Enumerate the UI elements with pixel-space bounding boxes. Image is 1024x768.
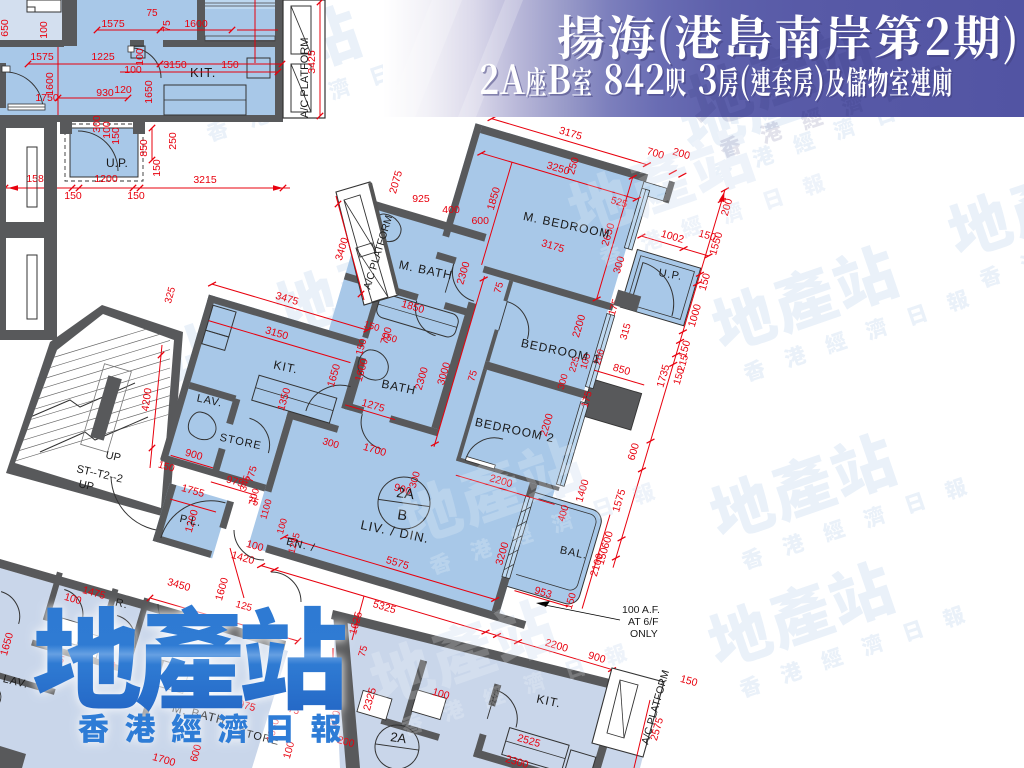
svg-text:930: 930 bbox=[96, 87, 114, 99]
svg-text:150: 150 bbox=[64, 190, 82, 202]
svg-text:1650: 1650 bbox=[143, 80, 155, 104]
svg-text:100 A.F.: 100 A.F. bbox=[622, 604, 660, 616]
svg-text:150: 150 bbox=[110, 127, 122, 145]
svg-text:400: 400 bbox=[442, 204, 460, 216]
svg-text:850: 850 bbox=[138, 139, 150, 157]
svg-text:3150: 3150 bbox=[163, 59, 187, 71]
svg-text:3215: 3215 bbox=[193, 174, 217, 186]
svg-text:150: 150 bbox=[221, 59, 239, 71]
svg-text:120: 120 bbox=[114, 84, 132, 96]
svg-text:ONLY: ONLY bbox=[630, 628, 658, 640]
svg-text:925: 925 bbox=[412, 193, 430, 205]
svg-text:1750: 1750 bbox=[35, 92, 59, 104]
svg-text:1575: 1575 bbox=[30, 51, 54, 63]
svg-text:A/C PLATFORM: A/C PLATFORM bbox=[299, 38, 311, 118]
svg-text:100: 100 bbox=[134, 48, 146, 66]
svg-text:U.P.: U.P. bbox=[106, 156, 128, 170]
svg-text:AT 6/F: AT 6/F bbox=[628, 616, 659, 628]
svg-text:600: 600 bbox=[471, 215, 489, 227]
svg-text:1225: 1225 bbox=[91, 51, 115, 63]
svg-text:3425: 3425 bbox=[306, 50, 318, 74]
svg-text:1575: 1575 bbox=[101, 18, 125, 30]
svg-text:250: 250 bbox=[167, 132, 179, 150]
svg-text:150: 150 bbox=[127, 190, 145, 202]
svg-text:75: 75 bbox=[146, 8, 158, 19]
svg-text:2A: 2A bbox=[389, 729, 407, 746]
svg-text:1600: 1600 bbox=[184, 18, 208, 30]
svg-text:150: 150 bbox=[151, 159, 163, 177]
svg-text:650: 650 bbox=[0, 19, 11, 37]
svg-text:100: 100 bbox=[38, 21, 50, 39]
svg-text:1200: 1200 bbox=[94, 173, 118, 185]
